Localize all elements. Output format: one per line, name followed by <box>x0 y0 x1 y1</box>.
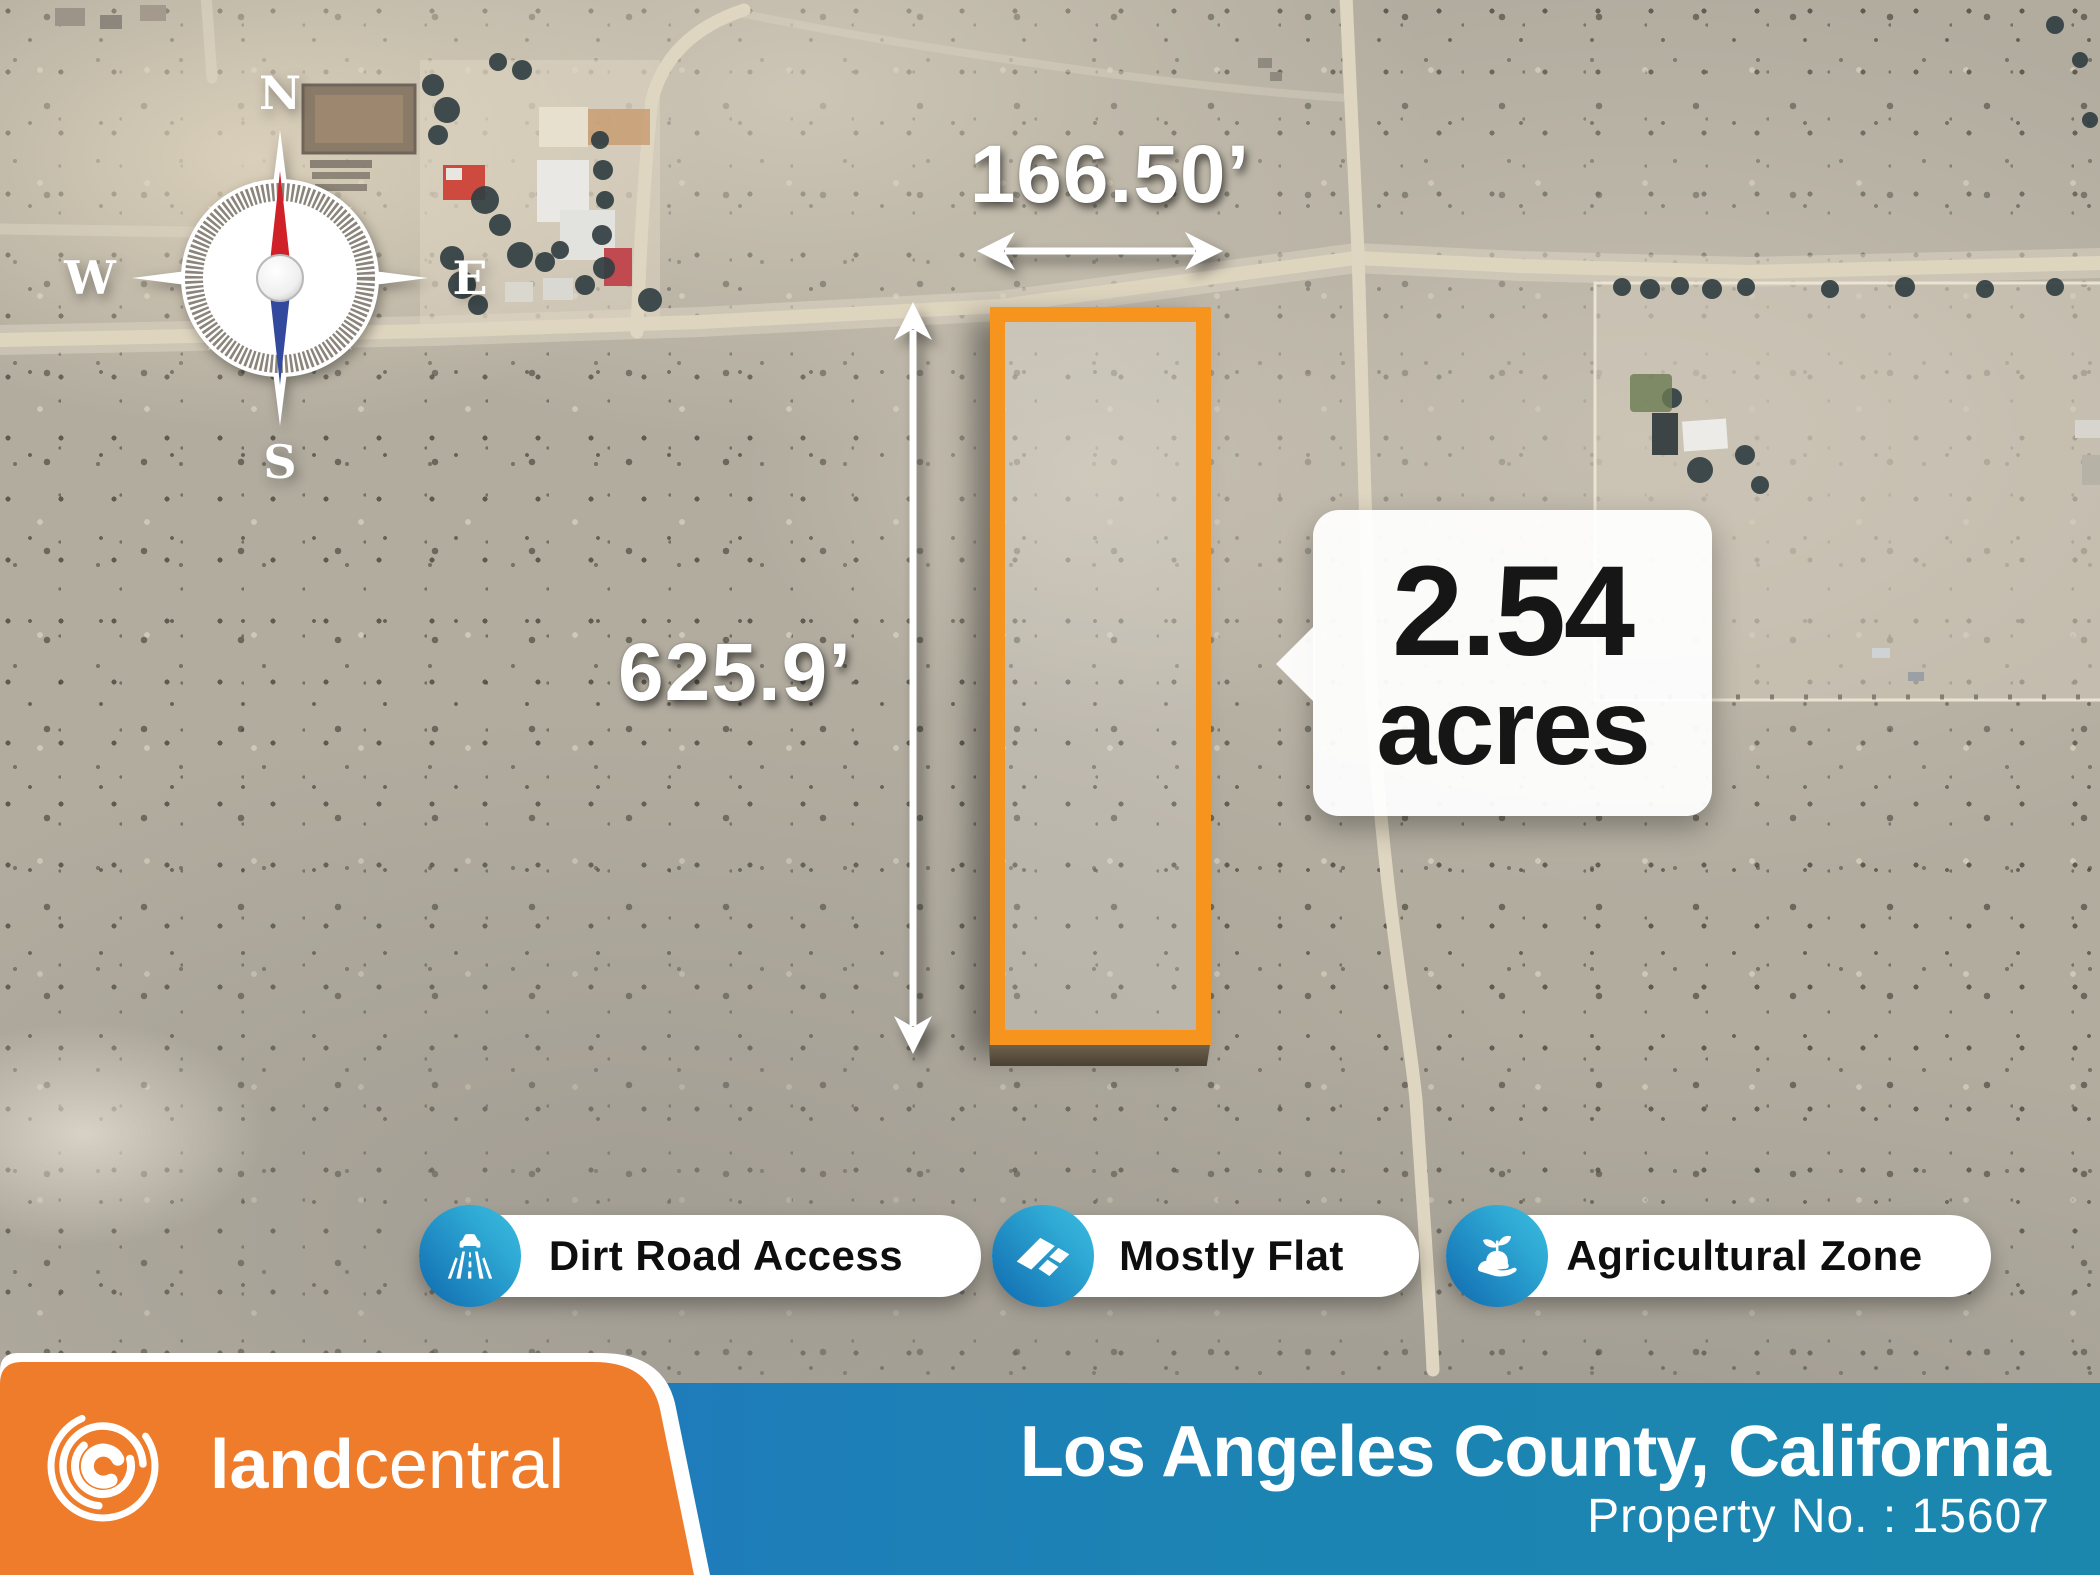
flat-land-icon <box>992 1205 1094 1307</box>
compass-label-e: E <box>452 251 487 305</box>
feature-pill-mostly-flat: Mostly Flat <box>992 1215 1419 1297</box>
compass-label-w: W <box>63 251 117 305</box>
acreage-callout: 2.54 acres <box>1313 510 1712 816</box>
brand-word-land: land <box>210 1425 354 1503</box>
brand-word-central: central <box>354 1425 564 1503</box>
property-boundary <box>990 307 1211 1045</box>
property-number: Property No. : 15607 <box>1587 1490 2050 1543</box>
compass-rose: N S W E <box>60 35 500 495</box>
feature-label: Dirt Road Access <box>527 1232 981 1280</box>
height-dimension-label: 625.9’ <box>555 626 915 720</box>
acreage-value: 2.54 <box>1392 548 1633 676</box>
compass-center-knob <box>257 255 303 301</box>
compass-label-n: N <box>259 66 301 120</box>
hand-sprout-icon <box>1446 1205 1548 1307</box>
height-arrow <box>886 300 940 1056</box>
width-arrow <box>975 228 1225 274</box>
location-title: Los Angeles County, California <box>1020 1412 2052 1492</box>
acreage-unit: acres <box>1376 676 1648 779</box>
feature-label: Mostly Flat <box>1100 1232 1419 1280</box>
compass-label-s: S <box>263 435 296 489</box>
width-dimension-label: 166.50’ <box>930 128 1290 222</box>
dirt-trail-top <box>744 14 1346 98</box>
footer-bar: landcentral Los Angeles County, Californ… <box>0 1340 2100 1575</box>
brand-wordmark: landcentral <box>210 1425 564 1503</box>
property-flyer: N S W E 166.50’ 625.9’ 2.54 acres <box>0 0 2100 1575</box>
feature-label: Agricultural Zone <box>1554 1232 1991 1280</box>
feature-pill-dirt-road-access: Dirt Road Access <box>419 1215 981 1297</box>
feature-pill-agricultural-zone: Agricultural Zone <box>1446 1215 1991 1297</box>
road-icon <box>419 1205 521 1307</box>
